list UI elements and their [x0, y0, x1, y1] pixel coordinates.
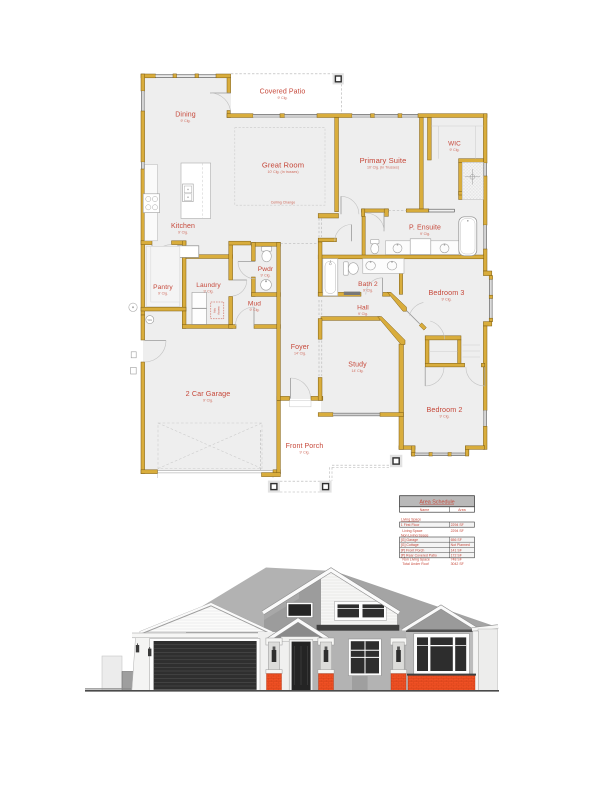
svg-text:[P] Front Porch: [P] Front Porch — [401, 548, 425, 552]
svg-text:9' Clg.: 9' Clg. — [277, 96, 287, 100]
svg-text:Not Planned: Not Planned — [451, 543, 470, 547]
svg-text:Covered Patio: Covered Patio — [260, 89, 306, 96]
svg-text:14' Clg.: 14' Clg. — [294, 352, 306, 356]
svg-text:WH: WH — [147, 318, 152, 322]
svg-text:748 SF: 748 SF — [451, 558, 462, 562]
svg-text:9' Clg.: 9' Clg. — [203, 399, 213, 403]
svg-text:656 SF: 656 SF — [451, 538, 462, 542]
svg-text:Attic: Attic — [213, 307, 217, 313]
svg-text:2 Car Garage: 2 Car Garage — [186, 389, 231, 398]
svg-text:9' Clg.: 9' Clg. — [260, 274, 270, 278]
svg-text:Study: Study — [348, 362, 367, 369]
svg-text:9' Clg.: 9' Clg. — [299, 451, 309, 455]
svg-text:9' Clg.: 9' Clg. — [449, 148, 459, 152]
svg-text:Dining: Dining — [175, 112, 195, 119]
svg-text:9' Clg.: 9' Clg. — [441, 298, 451, 302]
svg-text:Ceiling Change: Ceiling Change — [271, 201, 296, 205]
svg-text:Front Porch: Front Porch — [286, 443, 324, 450]
svg-text:Kitchen: Kitchen — [171, 223, 195, 230]
svg-text:2294 SF: 2294 SF — [451, 529, 464, 533]
svg-text:Name: Name — [420, 508, 430, 512]
svg-text:Access: Access — [217, 306, 221, 315]
svg-text:1 First Floor: 1 First Floor — [401, 523, 421, 527]
svg-text:Living Space: Living Space — [401, 518, 421, 522]
svg-text:9' Clg.: 9' Clg. — [420, 232, 430, 236]
svg-text:9' Clg.: 9' Clg. — [363, 289, 373, 293]
svg-text:Foyer: Foyer — [291, 344, 310, 351]
svg-text:Mud: Mud — [248, 301, 261, 308]
svg-text:Non Living Space: Non Living Space — [402, 558, 429, 562]
svg-text:2294 SF: 2294 SF — [451, 523, 464, 527]
svg-text:9' Clg.: 9' Clg. — [203, 290, 213, 294]
svg-text:Total Under Roof: Total Under Roof — [402, 562, 428, 566]
svg-text:Living Space: Living Space — [402, 529, 422, 533]
svg-text:[G] Garage: [G] Garage — [401, 538, 418, 542]
svg-text:Great Room: Great Room — [262, 161, 304, 170]
svg-text:9' Clg.: 9' Clg. — [249, 308, 259, 312]
svg-text:Bedroom 3: Bedroom 3 — [428, 288, 464, 297]
svg-text:10' Clg. (In Trusses): 10' Clg. (In Trusses) — [367, 166, 399, 170]
svg-text:9' Clg.: 9' Clg. — [178, 231, 188, 235]
svg-text:10' Clg. (In trusses): 10' Clg. (In trusses) — [267, 170, 298, 174]
svg-text:9' Clg.: 9' Clg. — [180, 119, 190, 123]
svg-text:Pantry: Pantry — [153, 284, 173, 291]
svg-text:Bath 2: Bath 2 — [358, 281, 378, 288]
svg-text:9' Clg.: 9' Clg. — [358, 312, 368, 316]
svg-text:[G] Cottage: [G] Cottage — [401, 543, 419, 547]
svg-text:Pwdr: Pwdr — [258, 266, 274, 273]
svg-text:Hall: Hall — [357, 305, 369, 312]
svg-text:141 SF: 141 SF — [451, 548, 462, 552]
svg-text:14' Clg.: 14' Clg. — [351, 369, 363, 373]
svg-text:Primary Suite: Primary Suite — [360, 156, 407, 165]
svg-text:Bedroom 2: Bedroom 2 — [426, 405, 462, 414]
svg-text:9' Clg.: 9' Clg. — [158, 292, 168, 296]
svg-text:Laundry: Laundry — [196, 282, 221, 289]
svg-text:3042 SF: 3042 SF — [451, 562, 464, 566]
svg-text:Area: Area — [458, 508, 466, 512]
svg-text:9' Clg.: 9' Clg. — [439, 415, 449, 419]
svg-text:WIC: WIC — [448, 141, 461, 148]
svg-text:P. Ensuite: P. Ensuite — [409, 225, 441, 232]
